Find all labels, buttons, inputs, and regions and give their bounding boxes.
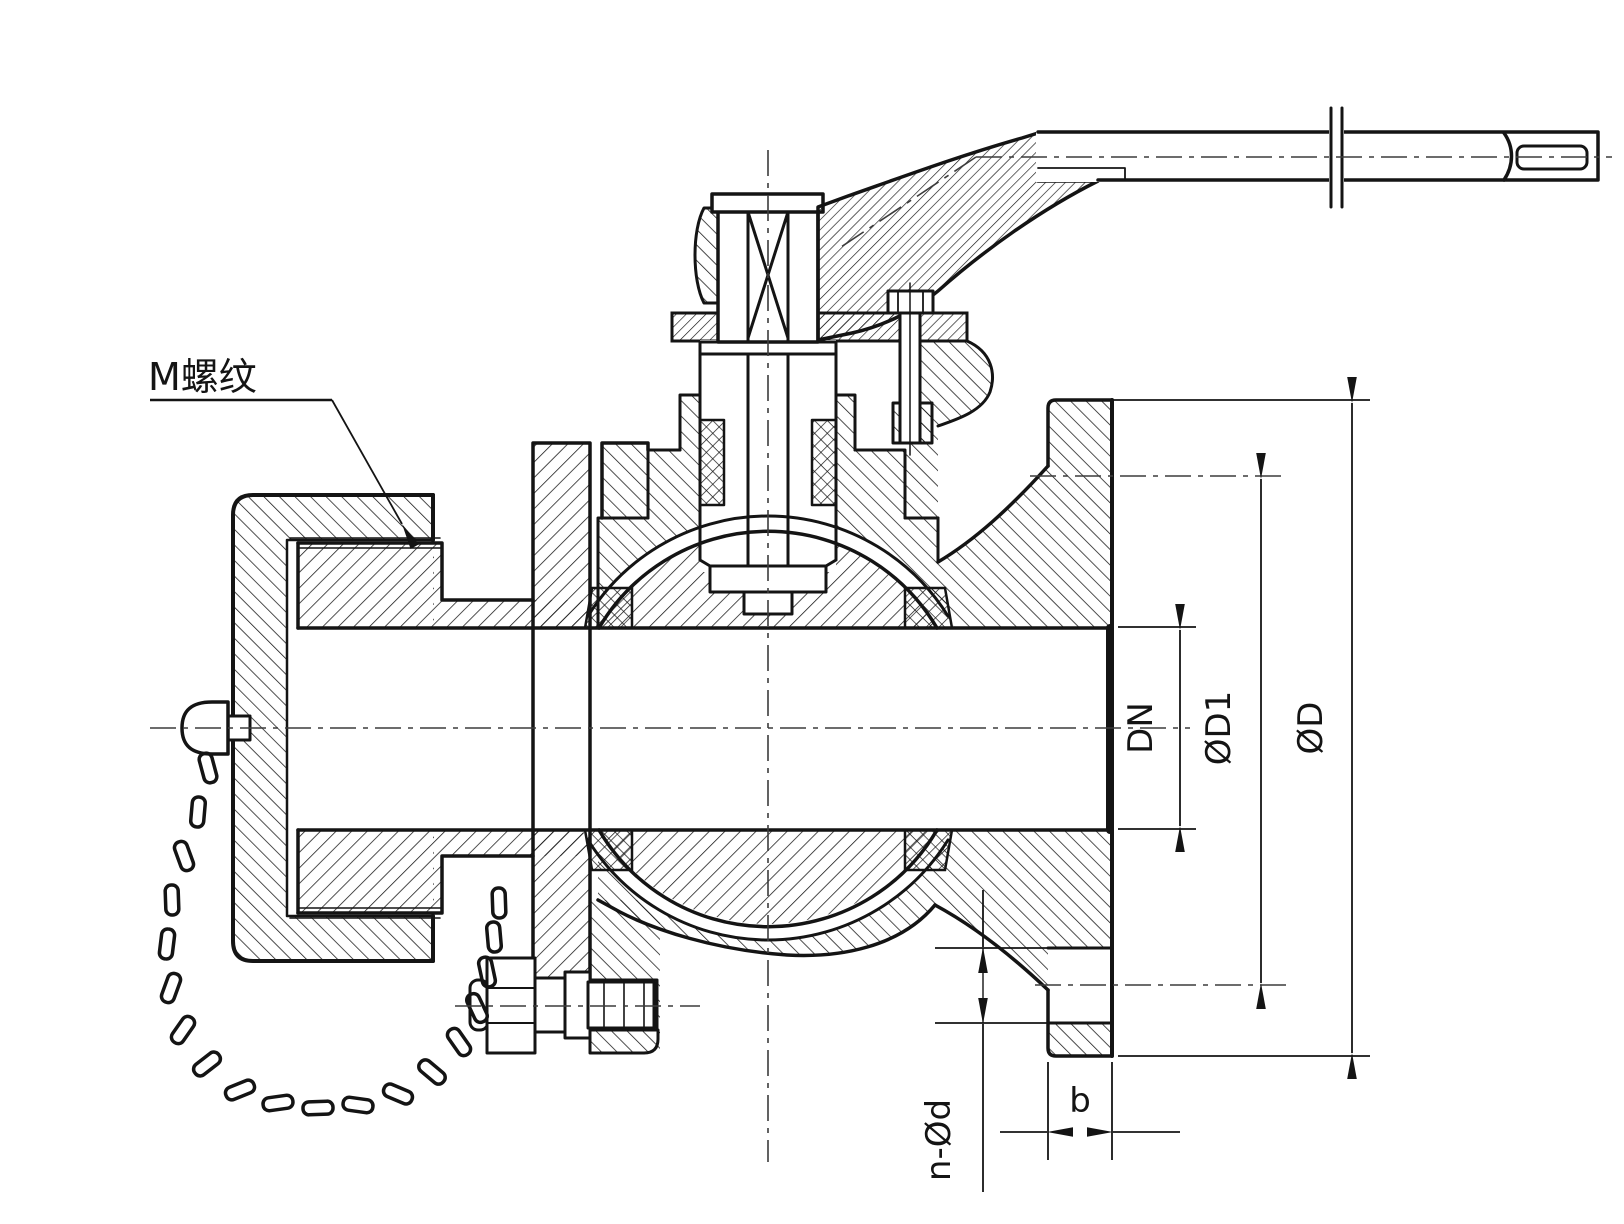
thread-label: M螺纹	[148, 355, 257, 399]
engineering-drawing: M螺纹 DN ØD1 ØD n-Ød b	[0, 0, 1624, 1224]
dim-label-d: ØD	[1291, 702, 1331, 755]
dim-label-nd: n-Ød	[919, 1099, 959, 1181]
dim-label-d1: ØD1	[1199, 691, 1239, 766]
handle	[818, 108, 1600, 340]
dim-label-b: b	[1069, 1081, 1091, 1121]
valve-drawing-canvas: M螺纹 DN ØD1 ØD n-Ød b	[0, 0, 1624, 1224]
bore	[298, 628, 1112, 830]
dim-label-dn: DN	[1121, 702, 1161, 754]
